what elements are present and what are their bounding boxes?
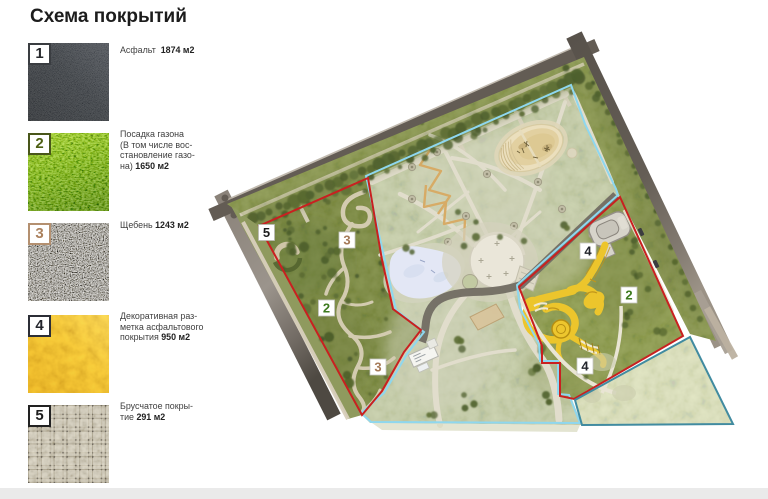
svg-text:2: 2 — [625, 288, 632, 303]
svg-text:5: 5 — [263, 225, 270, 240]
svg-text:2: 2 — [323, 301, 330, 316]
svg-text:3: 3 — [374, 360, 381, 375]
svg-text:4: 4 — [581, 359, 589, 374]
svg-text:4: 4 — [584, 244, 592, 259]
svg-text:3: 3 — [343, 233, 350, 248]
